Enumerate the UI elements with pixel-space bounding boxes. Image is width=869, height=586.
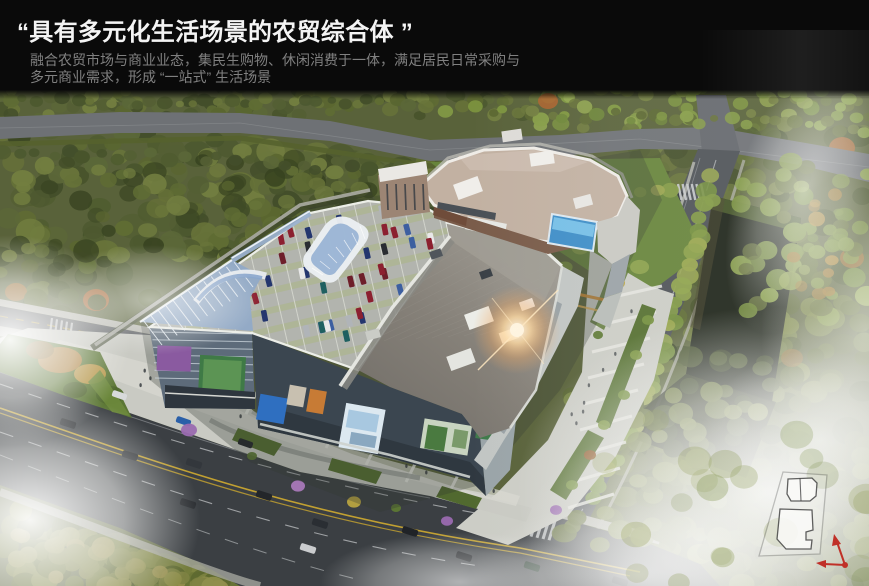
svg-text:多元商业需求，形成 “一站式” 生活场景: 多元商业需求，形成 “一站式” 生活场景: [30, 69, 271, 85]
svg-text:融合农贸市场与商业业态，集民生购物、休闲消费于一体，满足居民: 融合农贸市场与商业业态，集民生购物、休闲消费于一体，满足居民日常采购与: [30, 52, 520, 68]
svg-text:“具有多元化生活场景的农贸综合体 ”: “具有多元化生活场景的农贸综合体 ”: [17, 18, 413, 46]
